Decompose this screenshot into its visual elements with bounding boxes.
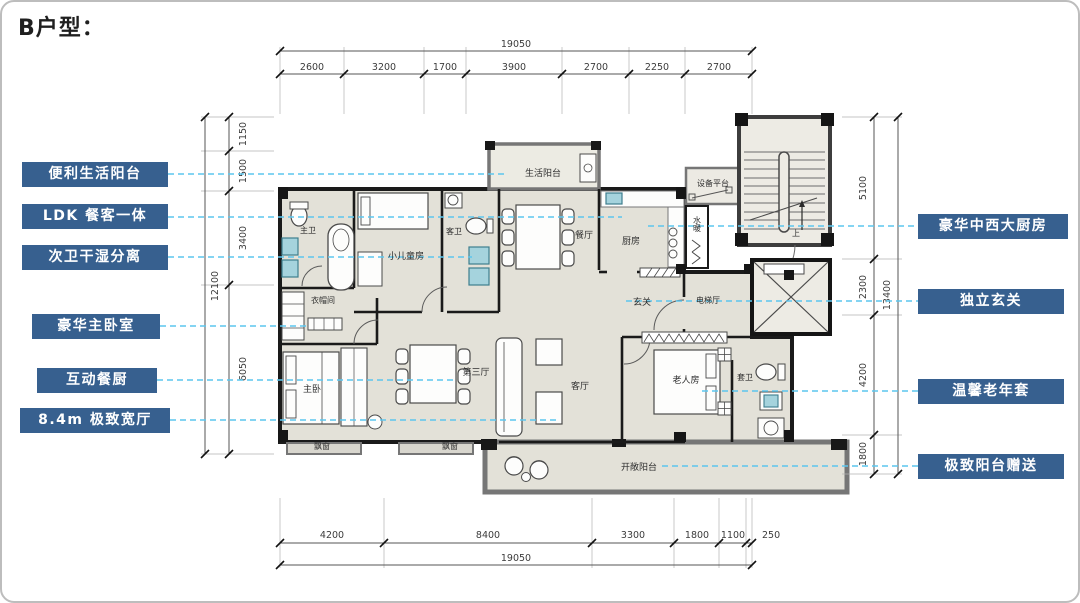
label-elevator-hall: 电梯厅 xyxy=(696,295,720,305)
svg-text:6050: 6050 xyxy=(238,357,249,381)
floor-plan xyxy=(278,113,847,492)
label-plumbing: 水暖 xyxy=(693,215,702,233)
label-dining: 餐厅 xyxy=(575,229,593,241)
label-guest-bath: 客卫 xyxy=(446,226,462,236)
dimension-right: 5100 2300 4200 1800 13400 xyxy=(842,113,902,478)
label-living-balcony: 生活阳台 xyxy=(525,167,561,179)
slide-frame: B户型： 便利生活阳台 LDK 餐客一体 次卫干湿分离 豪华主卧室 互动餐厨 8… xyxy=(0,0,1080,603)
dimension-left: 12100 1150 1500 3400 6050 xyxy=(201,113,274,458)
svg-text:1500: 1500 xyxy=(238,159,249,183)
svg-text:12100: 12100 xyxy=(210,271,221,301)
svg-text:3300: 3300 xyxy=(621,530,645,541)
label-master-bedroom: 主卧 xyxy=(303,383,321,395)
suite-bath-fixtures xyxy=(756,364,785,438)
balcony-sink xyxy=(580,154,596,182)
third-hall-table xyxy=(396,345,470,404)
svg-text:3200: 3200 xyxy=(372,62,396,73)
kitchen-sliding-door xyxy=(640,268,680,277)
svg-text:13400: 13400 xyxy=(882,280,893,310)
elderly-room-closet xyxy=(642,332,727,343)
svg-text:1150: 1150 xyxy=(238,122,249,146)
svg-text:3900: 3900 xyxy=(502,62,526,73)
svg-text:19050: 19050 xyxy=(501,553,531,564)
svg-text:8400: 8400 xyxy=(476,530,500,541)
svg-text:2700: 2700 xyxy=(707,62,731,73)
master-bedroom-furniture xyxy=(283,348,382,429)
svg-text:3400: 3400 xyxy=(238,226,249,250)
svg-text:2300: 2300 xyxy=(858,275,869,299)
svg-text:4200: 4200 xyxy=(858,363,869,387)
svg-text:2600: 2600 xyxy=(300,62,324,73)
svg-text:2700: 2700 xyxy=(584,62,608,73)
svg-text:2250: 2250 xyxy=(645,62,669,73)
floor-plan-drawing: 19050 2600 3200 1700 3900 2700 2250 2700 xyxy=(2,2,1080,603)
label-elderly-room: 老人房 xyxy=(672,374,699,386)
svg-text:250: 250 xyxy=(762,530,780,541)
label-master-bath: 主卫 xyxy=(300,225,316,235)
svg-text:19050: 19050 xyxy=(501,39,531,50)
label-kitchen: 厨房 xyxy=(622,235,640,247)
dimension-bottom: 4200 8400 3300 1800 1100 250 19050 xyxy=(276,498,780,569)
svg-text:5100: 5100 xyxy=(858,176,869,200)
label-foyer: 玄关 xyxy=(633,296,651,308)
svg-text:1800: 1800 xyxy=(858,442,869,466)
label-equipment-platform: 设备平台 xyxy=(697,178,729,188)
label-stairs-up: 上 xyxy=(792,229,800,238)
svg-text:1100: 1100 xyxy=(721,530,745,541)
label-third-hall: 第三厅 xyxy=(462,366,489,378)
label-suite-bath: 套卫 xyxy=(737,372,753,382)
svg-text:1800: 1800 xyxy=(685,530,709,541)
label-cloakroom: 衣帽间 xyxy=(311,295,335,305)
bay-window-right-shape xyxy=(399,443,473,454)
label-living-room: 客厅 xyxy=(571,380,589,392)
dining-table xyxy=(502,205,574,269)
label-kids-room: 小儿童房 xyxy=(388,250,424,262)
svg-text:1700: 1700 xyxy=(433,62,457,73)
svg-text:4200: 4200 xyxy=(320,530,344,541)
label-bay-window-left: 飘窗 xyxy=(314,441,330,451)
dimension-top: 19050 2600 3200 1700 3900 2700 2250 2700 xyxy=(276,39,756,114)
label-bay-window-right: 飘窗 xyxy=(442,441,458,451)
label-open-balcony: 开敞阳台 xyxy=(621,461,657,473)
